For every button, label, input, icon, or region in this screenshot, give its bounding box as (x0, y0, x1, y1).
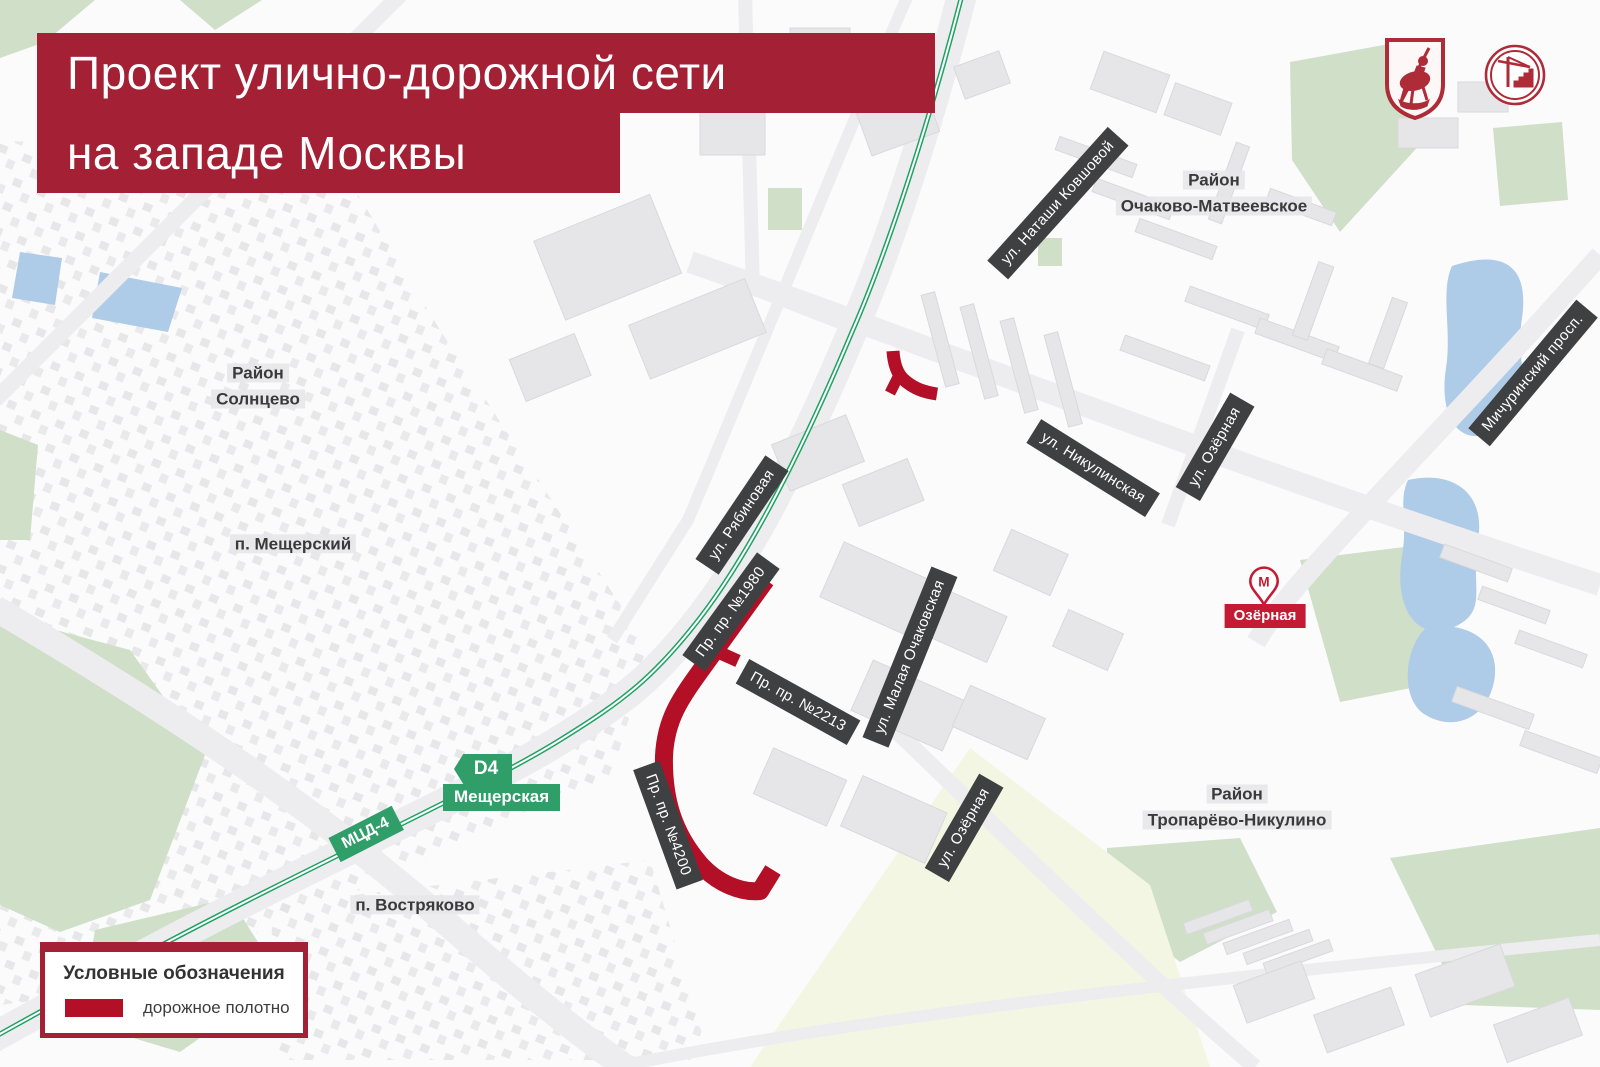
station-label-meshcherskaya: Мещерская (443, 784, 560, 811)
page-title-line1: Проект улично-дорожной сети (37, 33, 935, 113)
legend: Условные обозначения дорожное полотно (40, 942, 308, 1038)
district-label-solntsevo: Район Солнцево (211, 361, 305, 412)
district-label-vostryakovo: п. Востряково (350, 892, 479, 918)
metro-station-label-ozernaya: Озёрная (1225, 604, 1306, 628)
district-label-ochakovo-matveevskoe: Район Очаково-Матвеевское (1116, 168, 1312, 219)
legend-title: Условные обозначения (45, 963, 303, 985)
construction-complex-icon (1484, 44, 1546, 106)
poster: Проект улично-дорожной сети на западе Мо… (0, 0, 1600, 1067)
page-title-line2: на западе Москвы (37, 113, 620, 193)
d4-line-badge: D4 (454, 754, 512, 784)
moscow-coat-of-arms-icon (1383, 36, 1447, 122)
legend-swatch-road (65, 999, 123, 1017)
district-label-troparevo-nikulino: Район Тропарёво-Никулино (1143, 782, 1332, 833)
legend-item-label: дорожное полотно (143, 998, 290, 1018)
metro-letter: М (1258, 575, 1269, 590)
metro-station-icon: М (1248, 566, 1280, 606)
legend-item-road-surface: дорожное полотно (45, 998, 303, 1018)
district-label-meshchersky: п. Мещерский (230, 531, 356, 557)
